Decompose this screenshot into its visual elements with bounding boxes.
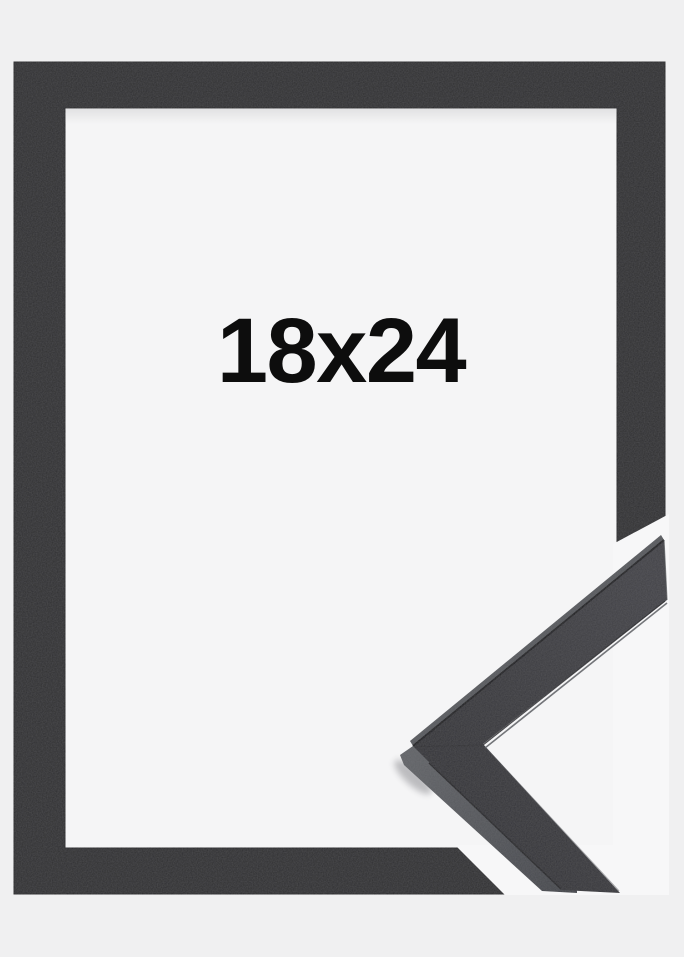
frame-opening-glass [65, 108, 617, 848]
frame-product-photo [0, 0, 684, 957]
glass-top-shadow [66, 109, 616, 124]
size-label: 18x24 [65, 281, 617, 421]
product-image[interactable]: 18x24 [0, 0, 684, 957]
